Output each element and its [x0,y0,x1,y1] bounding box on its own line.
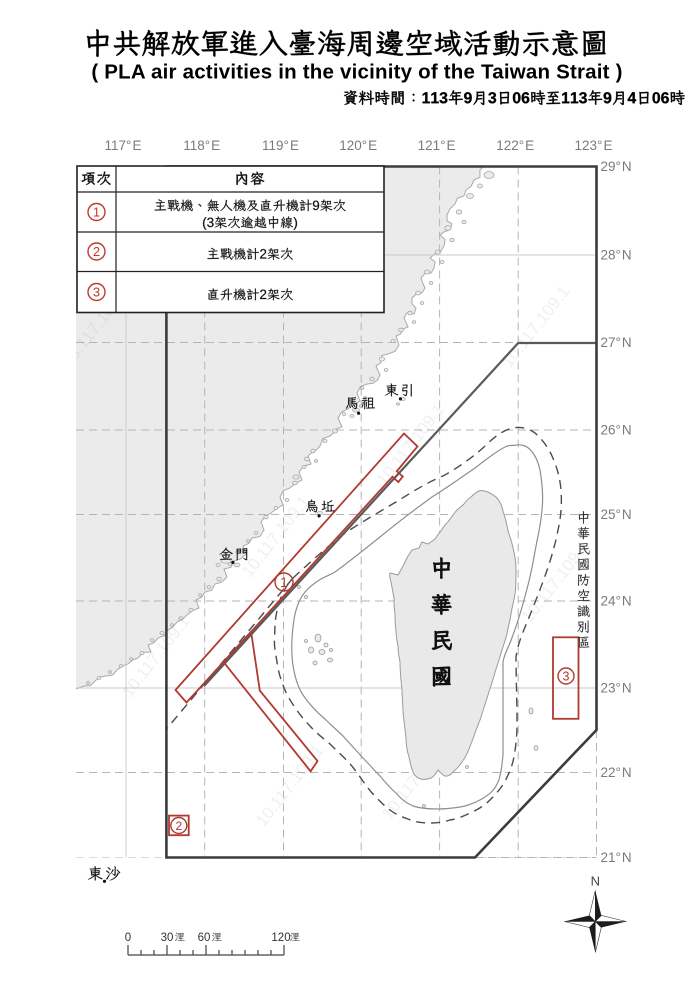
svg-text:123°E: 123°E [575,138,613,153]
svg-text:23°N: 23°N [601,681,632,696]
svg-text:24°N: 24°N [601,594,632,609]
svg-text:121°E: 121°E [418,138,456,153]
svg-text:22°N: 22°N [601,765,632,780]
svg-text:( PLA air activities in the vi: ( PLA air activities in the vicinity of … [91,61,622,84]
svg-text:0: 0 [125,932,131,944]
svg-text:N: N [591,874,600,889]
svg-text:118°E: 118°E [183,138,220,153]
svg-text:122°E: 122°E [496,138,534,153]
svg-text:120°E: 120°E [339,138,377,153]
svg-text:120: 120 [271,932,290,944]
svg-text:21°N: 21°N [601,850,632,865]
svg-text:2: 2 [93,244,100,259]
svg-text:26°N: 26°N [601,423,632,438]
svg-text:29°N: 29°N [601,159,632,174]
svg-text:25°N: 25°N [601,507,632,522]
svg-text:117°E: 117°E [105,138,142,153]
svg-text:3: 3 [93,285,100,300]
svg-text:119°E: 119°E [262,138,299,153]
svg-text:3: 3 [563,669,570,683]
svg-text:27°N: 27°N [601,335,632,350]
svg-text:2: 2 [175,819,182,833]
svg-text:30: 30 [161,932,174,944]
svg-text:1: 1 [280,574,288,590]
svg-text:1: 1 [93,205,100,220]
svg-text:28°N: 28°N [601,248,632,263]
svg-text:60: 60 [198,932,211,944]
